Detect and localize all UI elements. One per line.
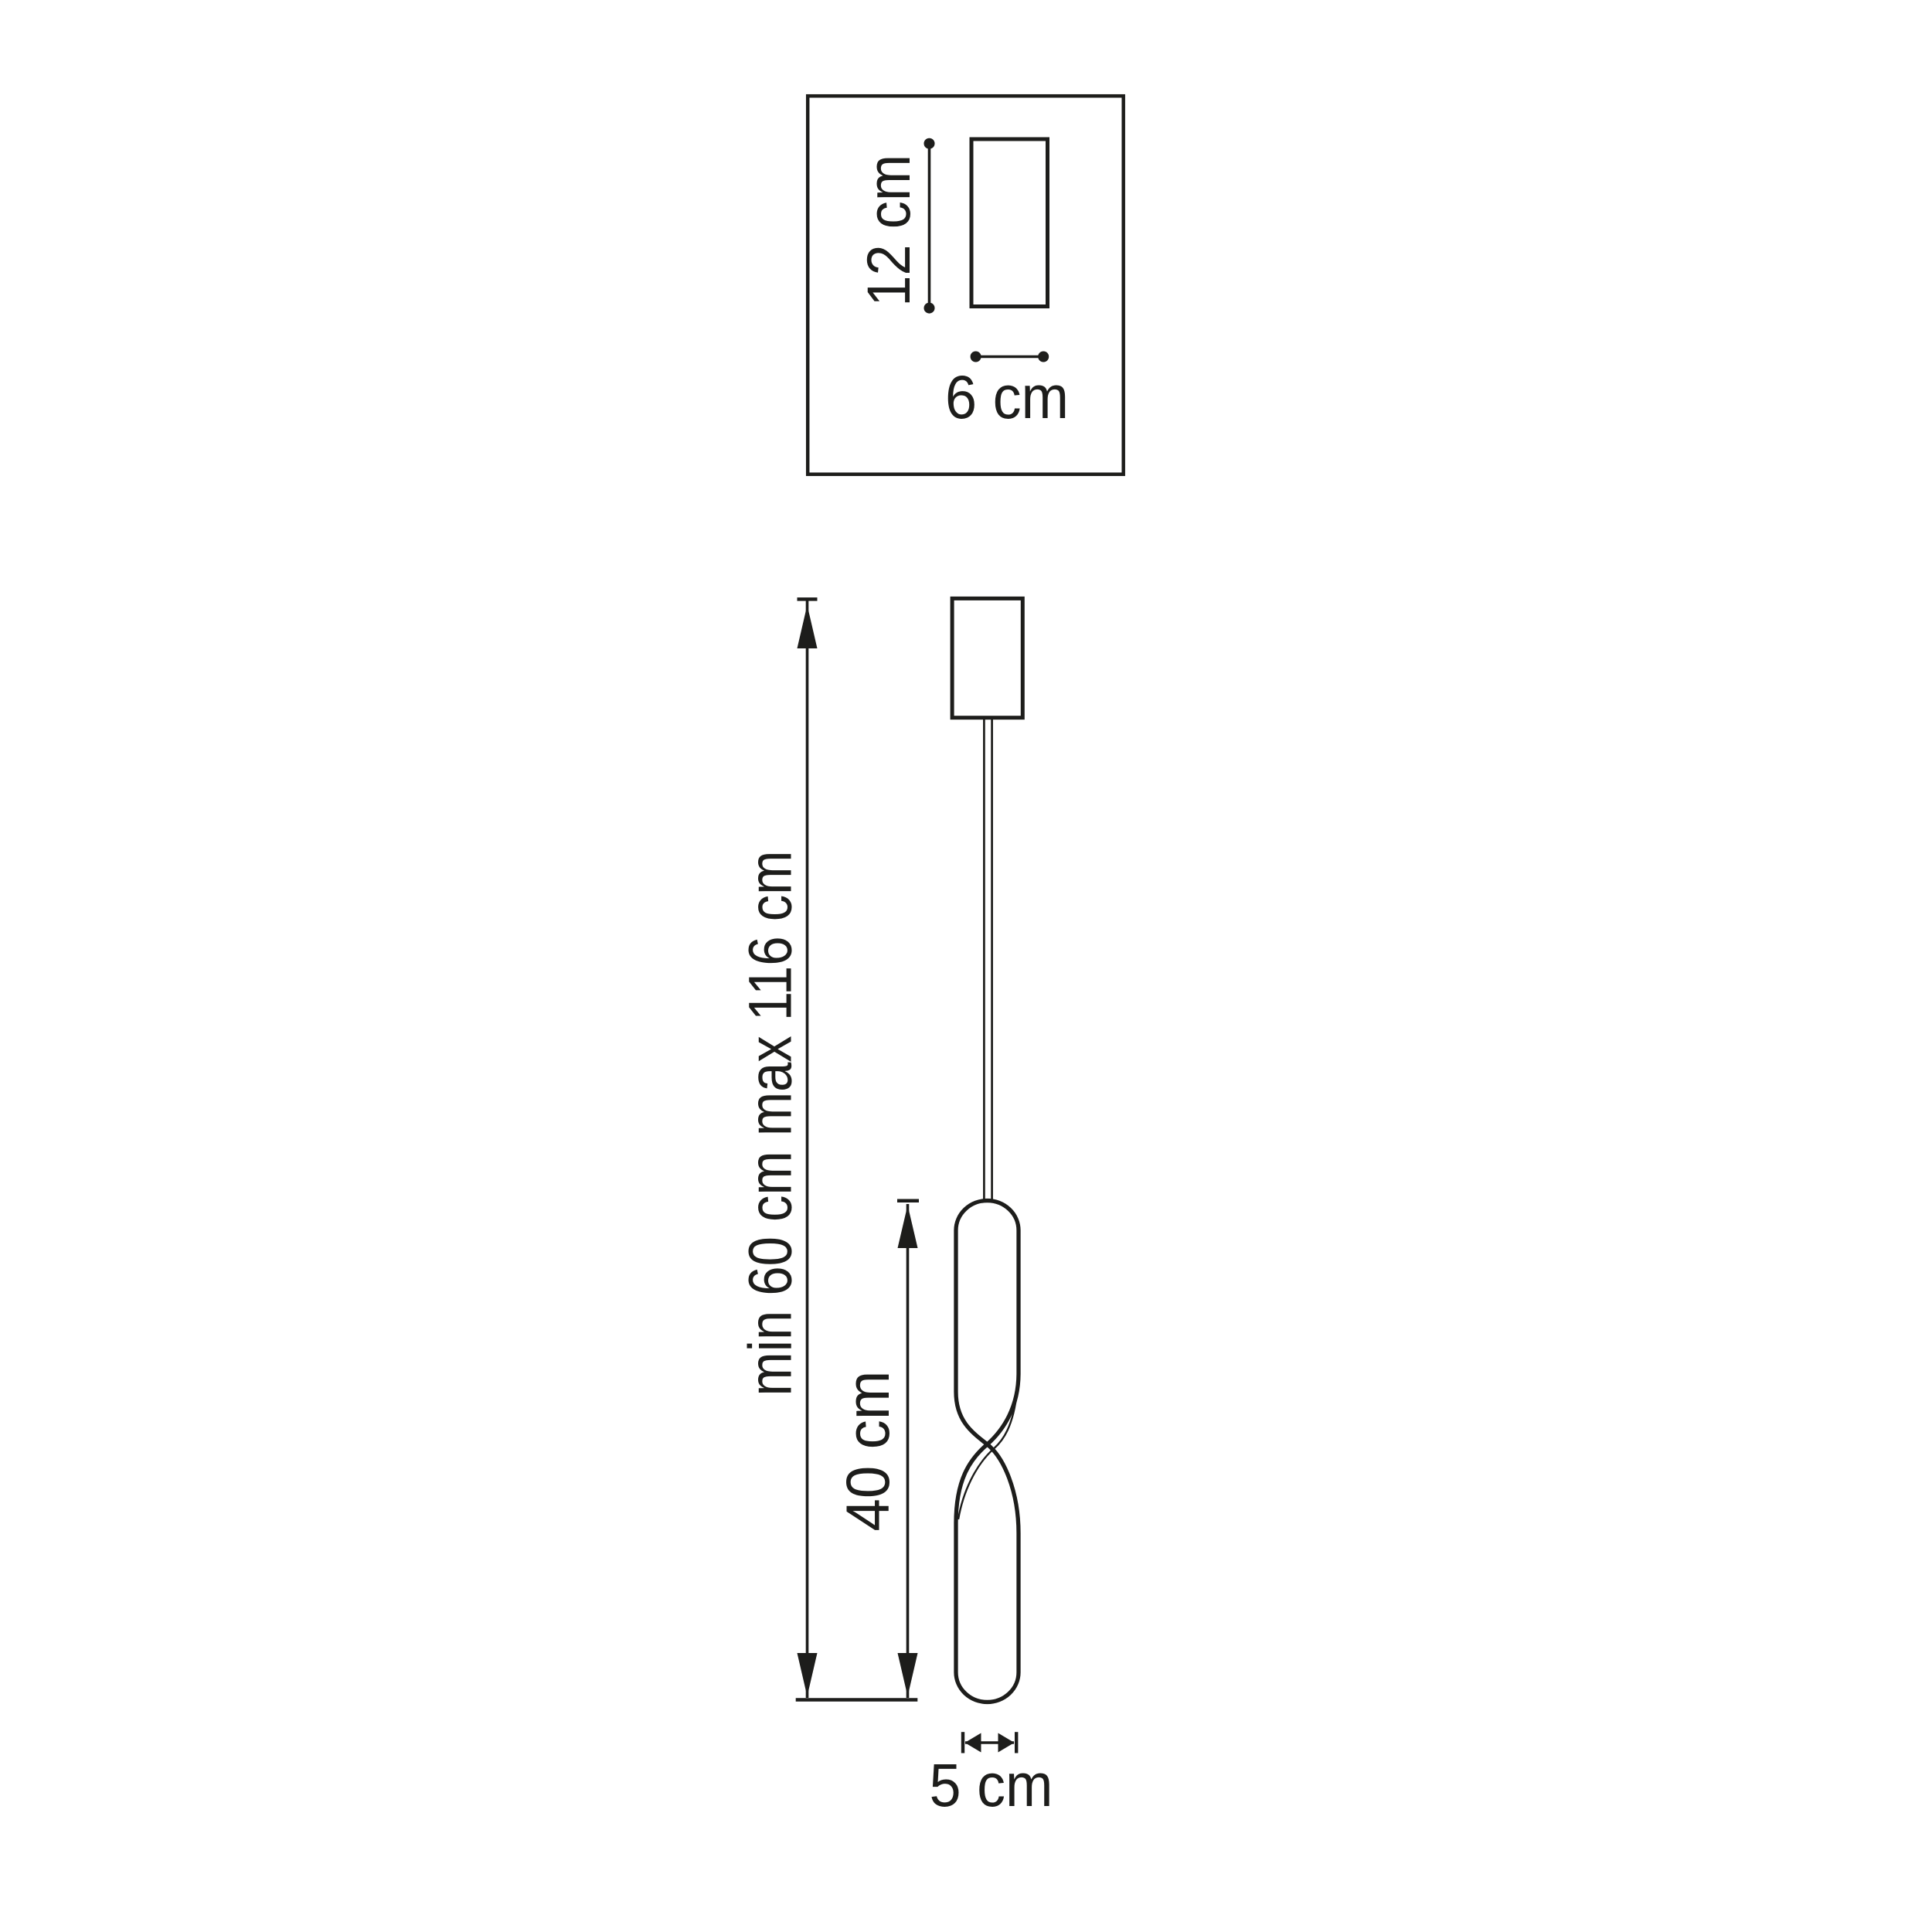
svg-text:5 cm: 5 cm: [930, 1750, 1053, 1819]
svg-text:12 cm: 12 cm: [854, 155, 923, 307]
svg-text:6 cm: 6 cm: [945, 362, 1069, 431]
svg-text:40 cm: 40 cm: [833, 1371, 902, 1532]
svg-text:min 60 cm max 116 cm: min 60 cm max 116 cm: [736, 851, 804, 1396]
